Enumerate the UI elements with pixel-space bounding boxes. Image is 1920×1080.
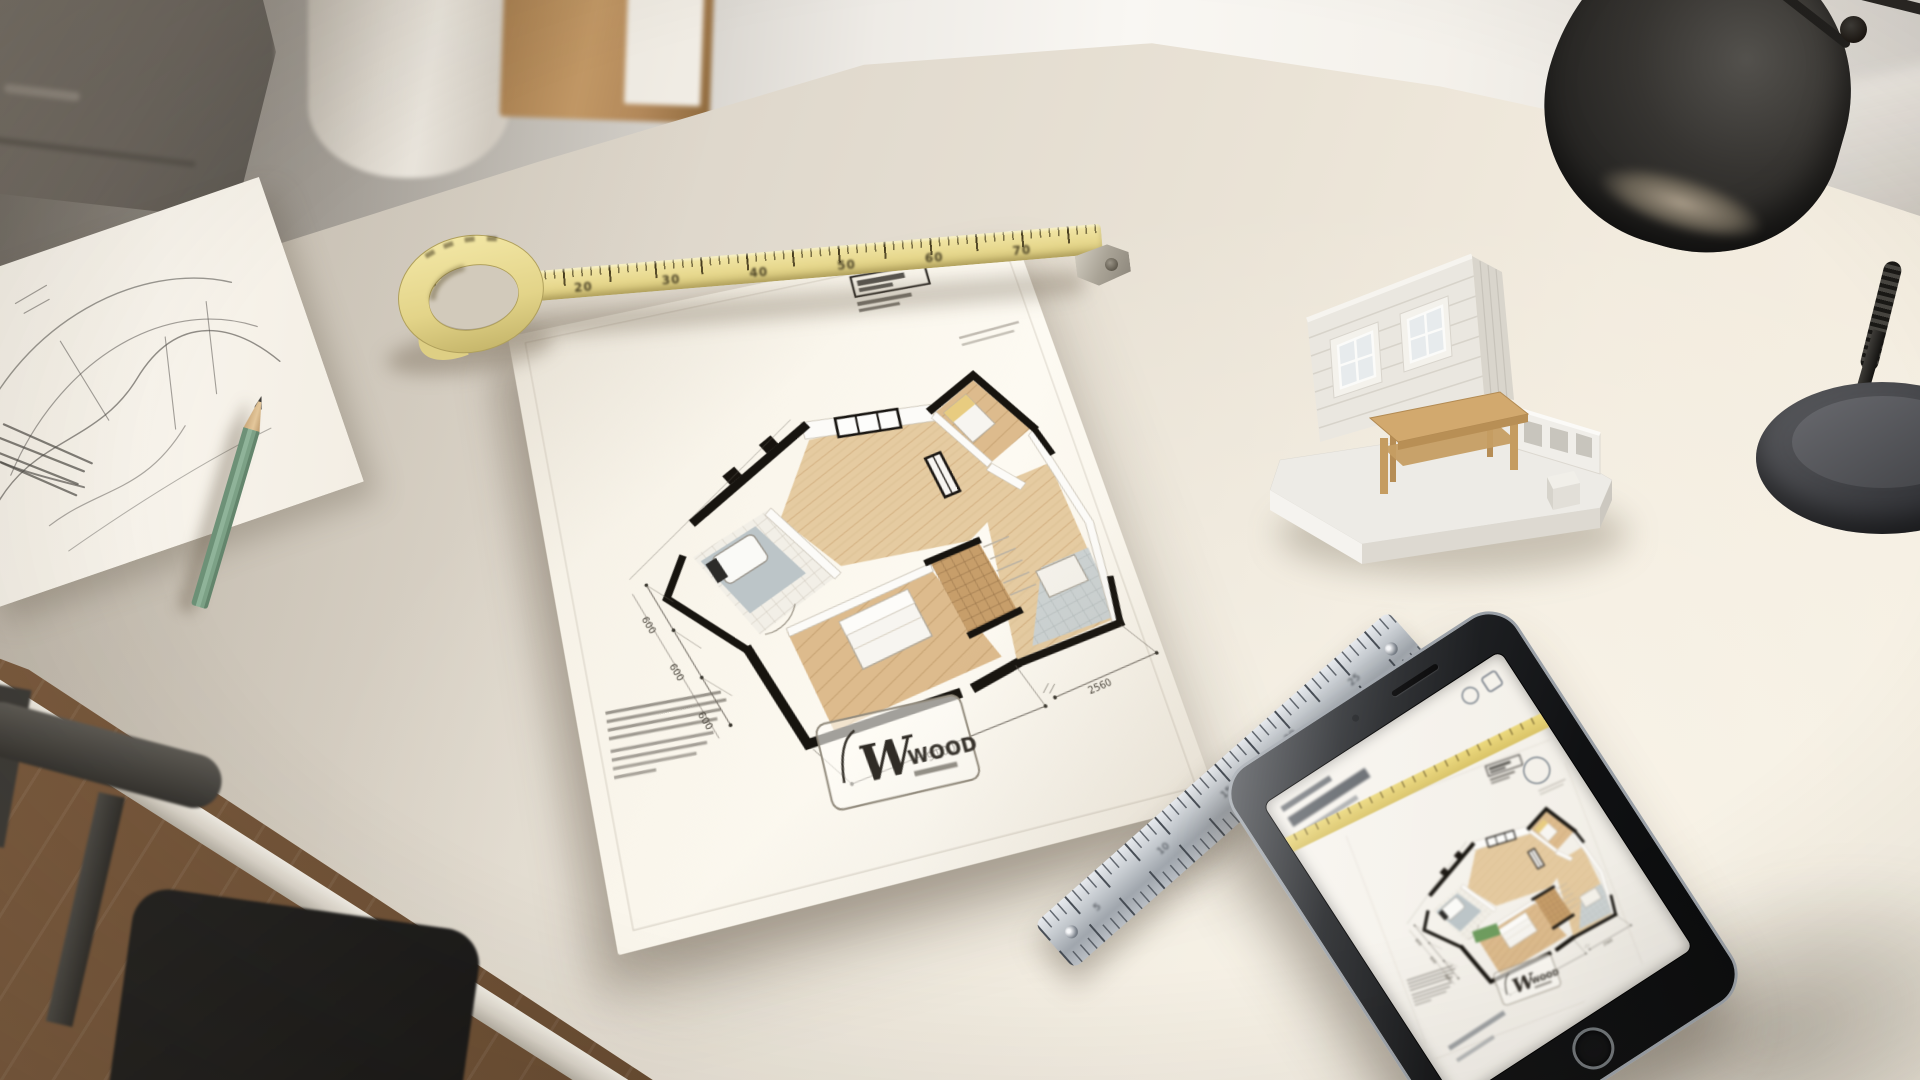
lamp-joint [1840, 16, 1867, 43]
tape-number: 40 [749, 265, 769, 281]
tape-measure-loop [382, 222, 558, 368]
ruler-number: 25 [1346, 672, 1363, 689]
architectural-model [1262, 242, 1636, 576]
tape-number: 20 [574, 279, 594, 295]
wooden-box-panel [625, 0, 704, 106]
wooden-box [500, 0, 715, 124]
tablet-home-button [1564, 1019, 1622, 1077]
desk-scene: 10 20 30 40 50 60 70 [0, 0, 1920, 1080]
cabinet-drawer-gap [0, 135, 196, 168]
app-toolbar-icon [1480, 669, 1505, 694]
ruler-number: 5 [1091, 901, 1103, 913]
ruler-hole [1062, 923, 1080, 941]
tape-number: 70 [1012, 243, 1032, 259]
tablet-speaker-slot [1390, 663, 1439, 697]
tape-number: 50 [837, 257, 857, 273]
cabinet-handle [4, 83, 81, 101]
tablet-camera-icon [1351, 713, 1361, 723]
app-toolbar-icon [1458, 683, 1483, 708]
white-canister [308, 0, 510, 178]
ruler-number: 10 [1155, 841, 1172, 858]
tape-number: 60 [924, 250, 944, 266]
tape-number: 30 [661, 272, 681, 288]
model-cube [1547, 471, 1580, 510]
ruler-hole [1382, 640, 1400, 658]
tape-clip-hole [1104, 257, 1118, 271]
